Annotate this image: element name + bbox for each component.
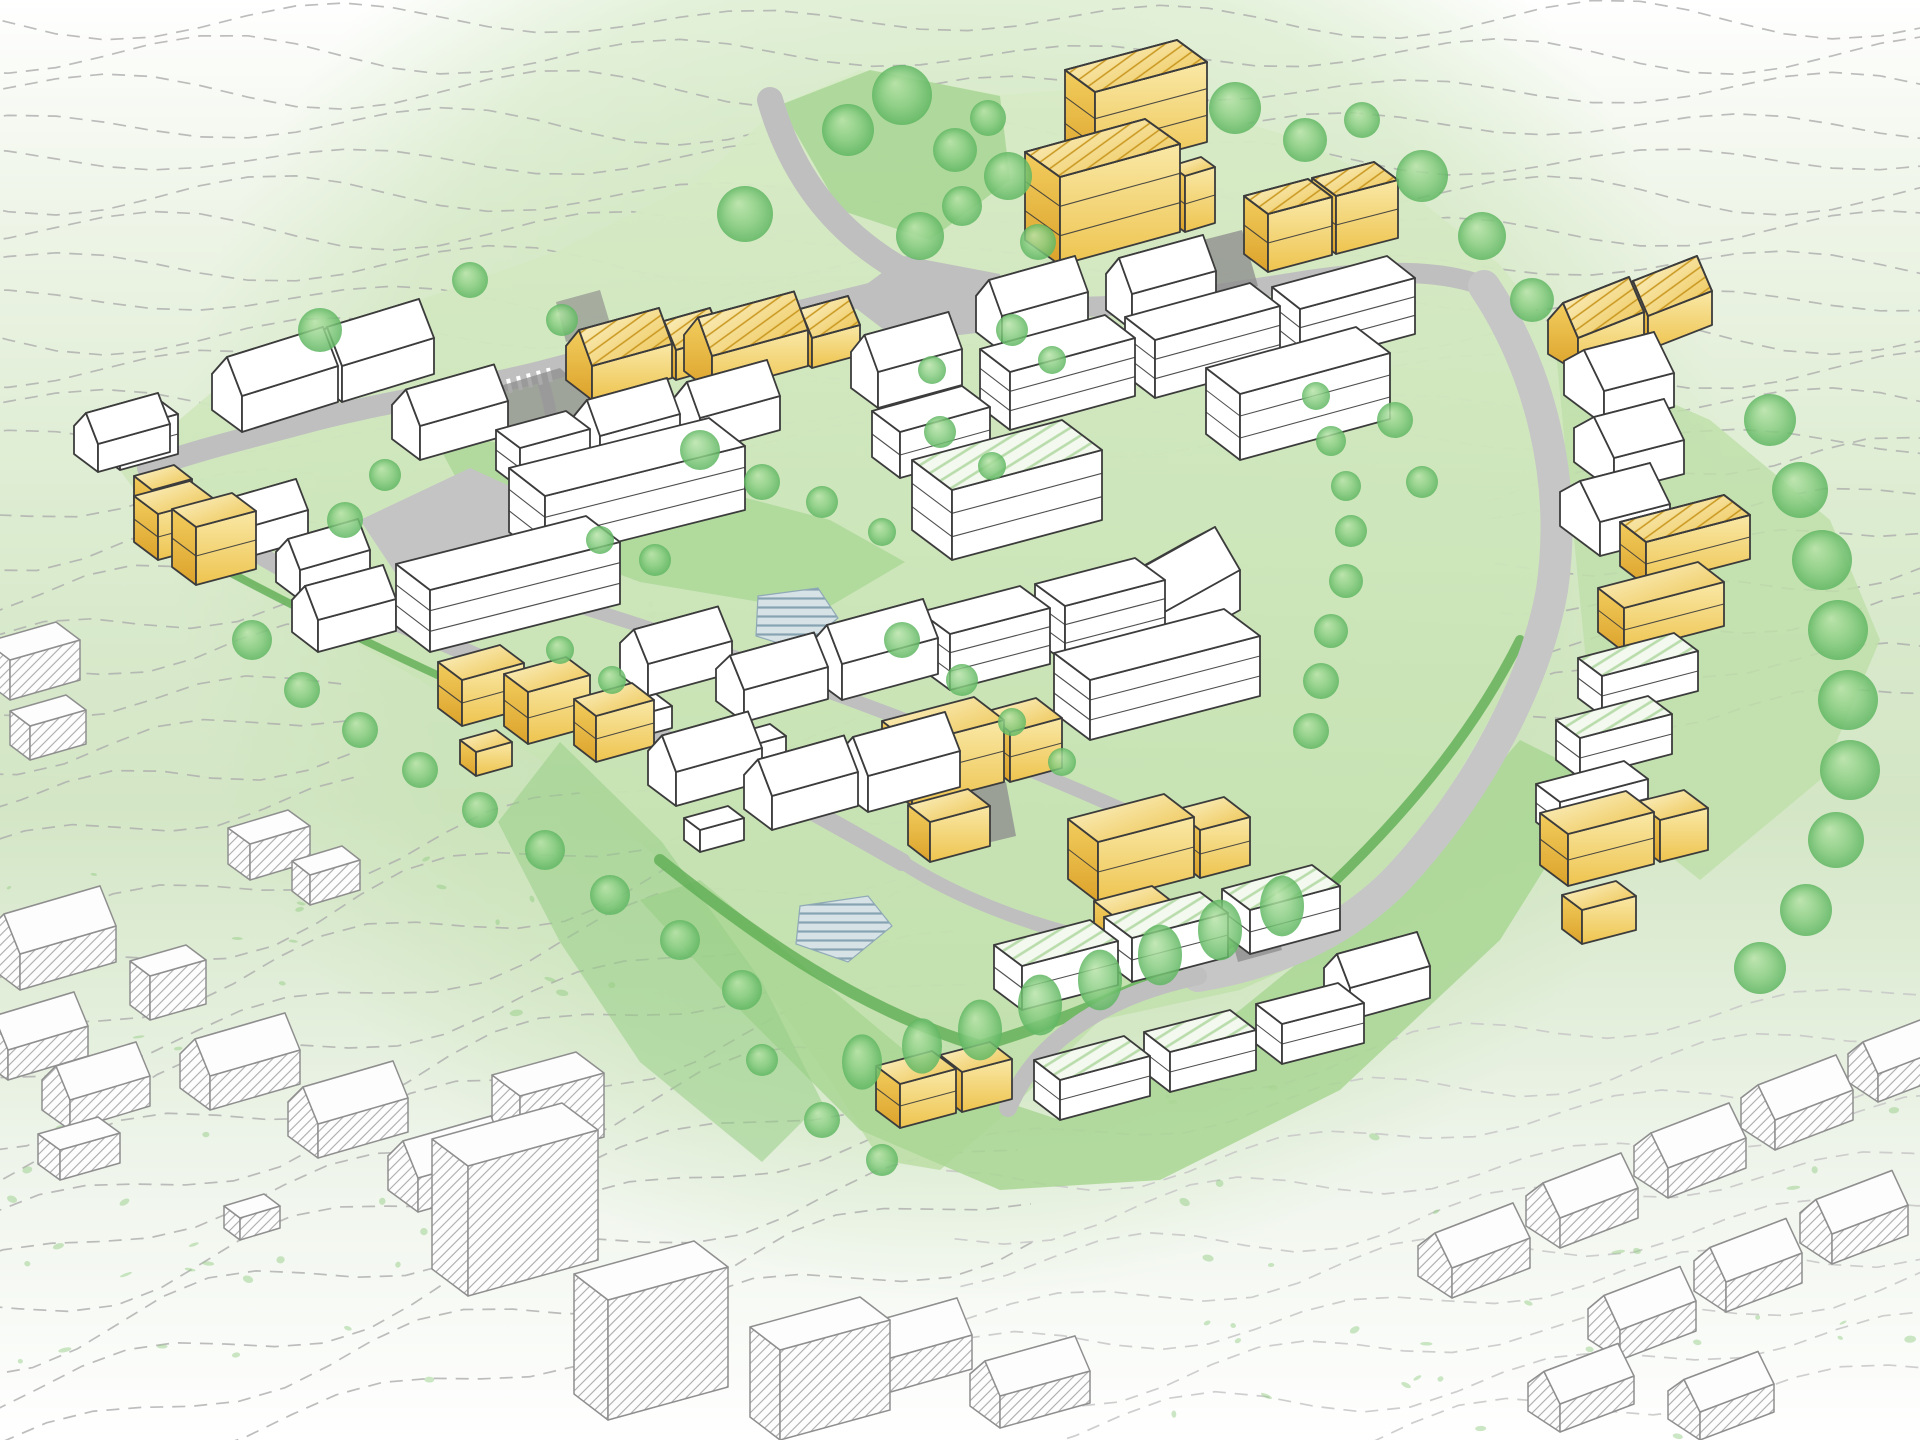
tree: [1048, 748, 1076, 776]
tree: [1772, 462, 1828, 518]
tree: [546, 304, 578, 336]
tree: [866, 1144, 898, 1176]
tree: [1377, 402, 1413, 438]
tree: [546, 636, 574, 664]
tree: [1818, 670, 1878, 730]
tree: [525, 830, 565, 870]
tree: [1302, 382, 1330, 410]
tree: [598, 666, 626, 694]
tree: [1078, 950, 1122, 1011]
tree: [1780, 884, 1832, 936]
tree: [933, 128, 977, 172]
tree: [804, 1102, 840, 1138]
tree: [342, 712, 378, 748]
building-new-highlighted: [1244, 179, 1332, 272]
tree: [232, 620, 272, 660]
tree: [1744, 394, 1796, 446]
tree: [884, 622, 920, 658]
building-new-highlighted: [574, 683, 654, 762]
tree: [1331, 471, 1361, 501]
tree: [1283, 118, 1327, 162]
tree: [924, 416, 956, 448]
tree: [1808, 600, 1868, 660]
tree: [822, 104, 874, 156]
tree: [1406, 466, 1438, 498]
tree: [1510, 278, 1554, 322]
tree: [1293, 713, 1329, 749]
tree: [722, 970, 762, 1010]
tree: [1314, 614, 1348, 648]
tree: [1329, 564, 1363, 598]
tree: [1260, 876, 1304, 937]
tree: [1138, 925, 1182, 986]
tree: [462, 792, 498, 828]
grass-speckle: [495, 919, 499, 925]
building-new-highlighted: [172, 493, 256, 585]
tree: [842, 1034, 882, 1089]
tree: [1344, 102, 1380, 138]
tree: [1808, 812, 1864, 868]
masterplan-canvas: [0, 0, 1920, 1440]
tree: [680, 430, 720, 470]
tree: [1209, 82, 1261, 134]
tree: [1316, 426, 1346, 456]
tree: [639, 544, 671, 576]
tree: [1018, 975, 1062, 1036]
tree: [1303, 663, 1339, 699]
tree: [946, 664, 978, 696]
tree: [327, 502, 363, 538]
tree: [717, 186, 773, 242]
tree: [452, 262, 488, 298]
tree: [978, 452, 1006, 480]
tree: [586, 526, 614, 554]
tree: [958, 1000, 1002, 1061]
tree: [1396, 150, 1448, 202]
tree: [1335, 515, 1367, 547]
tree: [284, 672, 320, 708]
tree: [918, 356, 946, 384]
tree: [942, 186, 982, 226]
tree: [298, 308, 342, 352]
tree: [872, 65, 932, 125]
tree: [868, 518, 896, 546]
tree: [996, 314, 1028, 346]
building-existing: [574, 1241, 728, 1420]
tree: [744, 464, 780, 500]
tree: [984, 152, 1032, 200]
tree: [1198, 900, 1242, 961]
tree: [1820, 740, 1880, 800]
tree: [402, 752, 438, 788]
tree: [896, 212, 944, 260]
tree: [998, 708, 1026, 736]
masterplan-illustration: [0, 0, 1920, 1440]
tree: [1458, 212, 1506, 260]
tree: [1734, 942, 1786, 994]
tree: [1038, 346, 1066, 374]
tree: [902, 1018, 942, 1073]
tree: [660, 920, 700, 960]
tree: [1020, 224, 1056, 260]
grass-speckle: [424, 1377, 434, 1383]
tree: [369, 459, 401, 491]
tree: [806, 486, 838, 518]
tree: [1792, 530, 1852, 590]
building-new-highlighted: [460, 730, 512, 776]
tree: [746, 1044, 778, 1076]
tree: [970, 100, 1006, 136]
tree: [590, 875, 630, 915]
building-existing: [432, 1103, 598, 1296]
